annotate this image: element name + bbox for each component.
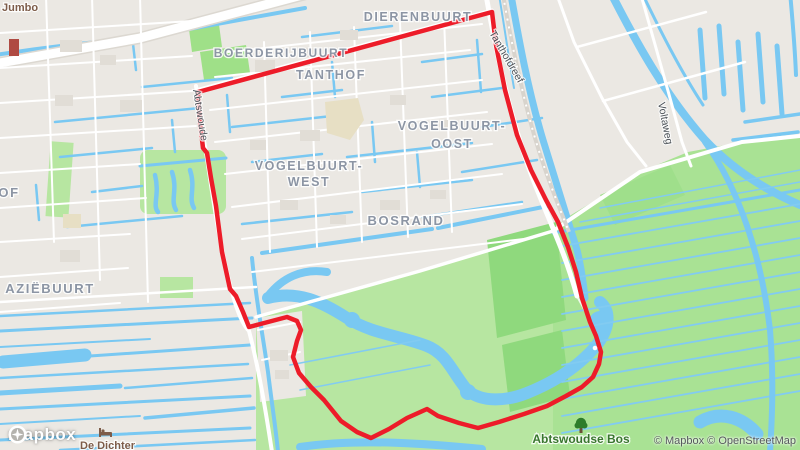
- mapbox-logo[interactable]: mapbox: [8, 425, 76, 445]
- district-label-bosrand: BOSRAND: [368, 213, 445, 228]
- mapbox-logo-icon: [8, 425, 27, 444]
- district-label-vogelbuurt-oost-line2: OOST: [431, 137, 473, 151]
- poi-label-abtswoudse-bos: Abtswoudse Bos: [532, 432, 630, 446]
- map-tiles: DIERENBUURT BOERDERIJBUURT TANTHOF VOGEL…: [0, 0, 800, 450]
- district-label-aziebuurt: AZIËBUURT: [5, 281, 95, 296]
- district-label-dierenbuurt: DIERENBUURT: [364, 10, 473, 24]
- map-canvas[interactable]: DIERENBUURT BOERDERIJBUURT TANTHOF VOGEL…: [0, 0, 800, 450]
- poi-label-jumbo: Jumbo: [2, 2, 38, 14]
- district-label-tanthof: TANTHOF: [296, 68, 366, 82]
- district-label-vogelbuurt-west-line2: WEST: [288, 175, 331, 189]
- district-label-vogelbuurt-oost-line1: VOGELBUURT-: [398, 119, 507, 133]
- district-label-vogelbuurt-west-line1: VOGELBUURT-: [255, 159, 364, 173]
- poi-label-de-dichter: De Dichter: [80, 440, 136, 450]
- map-attribution[interactable]: © Mapbox © OpenStreetMap: [654, 435, 796, 447]
- district-label-boerderijbuurt: BOERDERIJBUURT: [214, 46, 348, 60]
- route-endpoint-dot: [593, 346, 598, 351]
- district-label-hof-clipped: OF: [0, 185, 20, 200]
- street-label-abtswoude: Abtswoude: [190, 89, 210, 142]
